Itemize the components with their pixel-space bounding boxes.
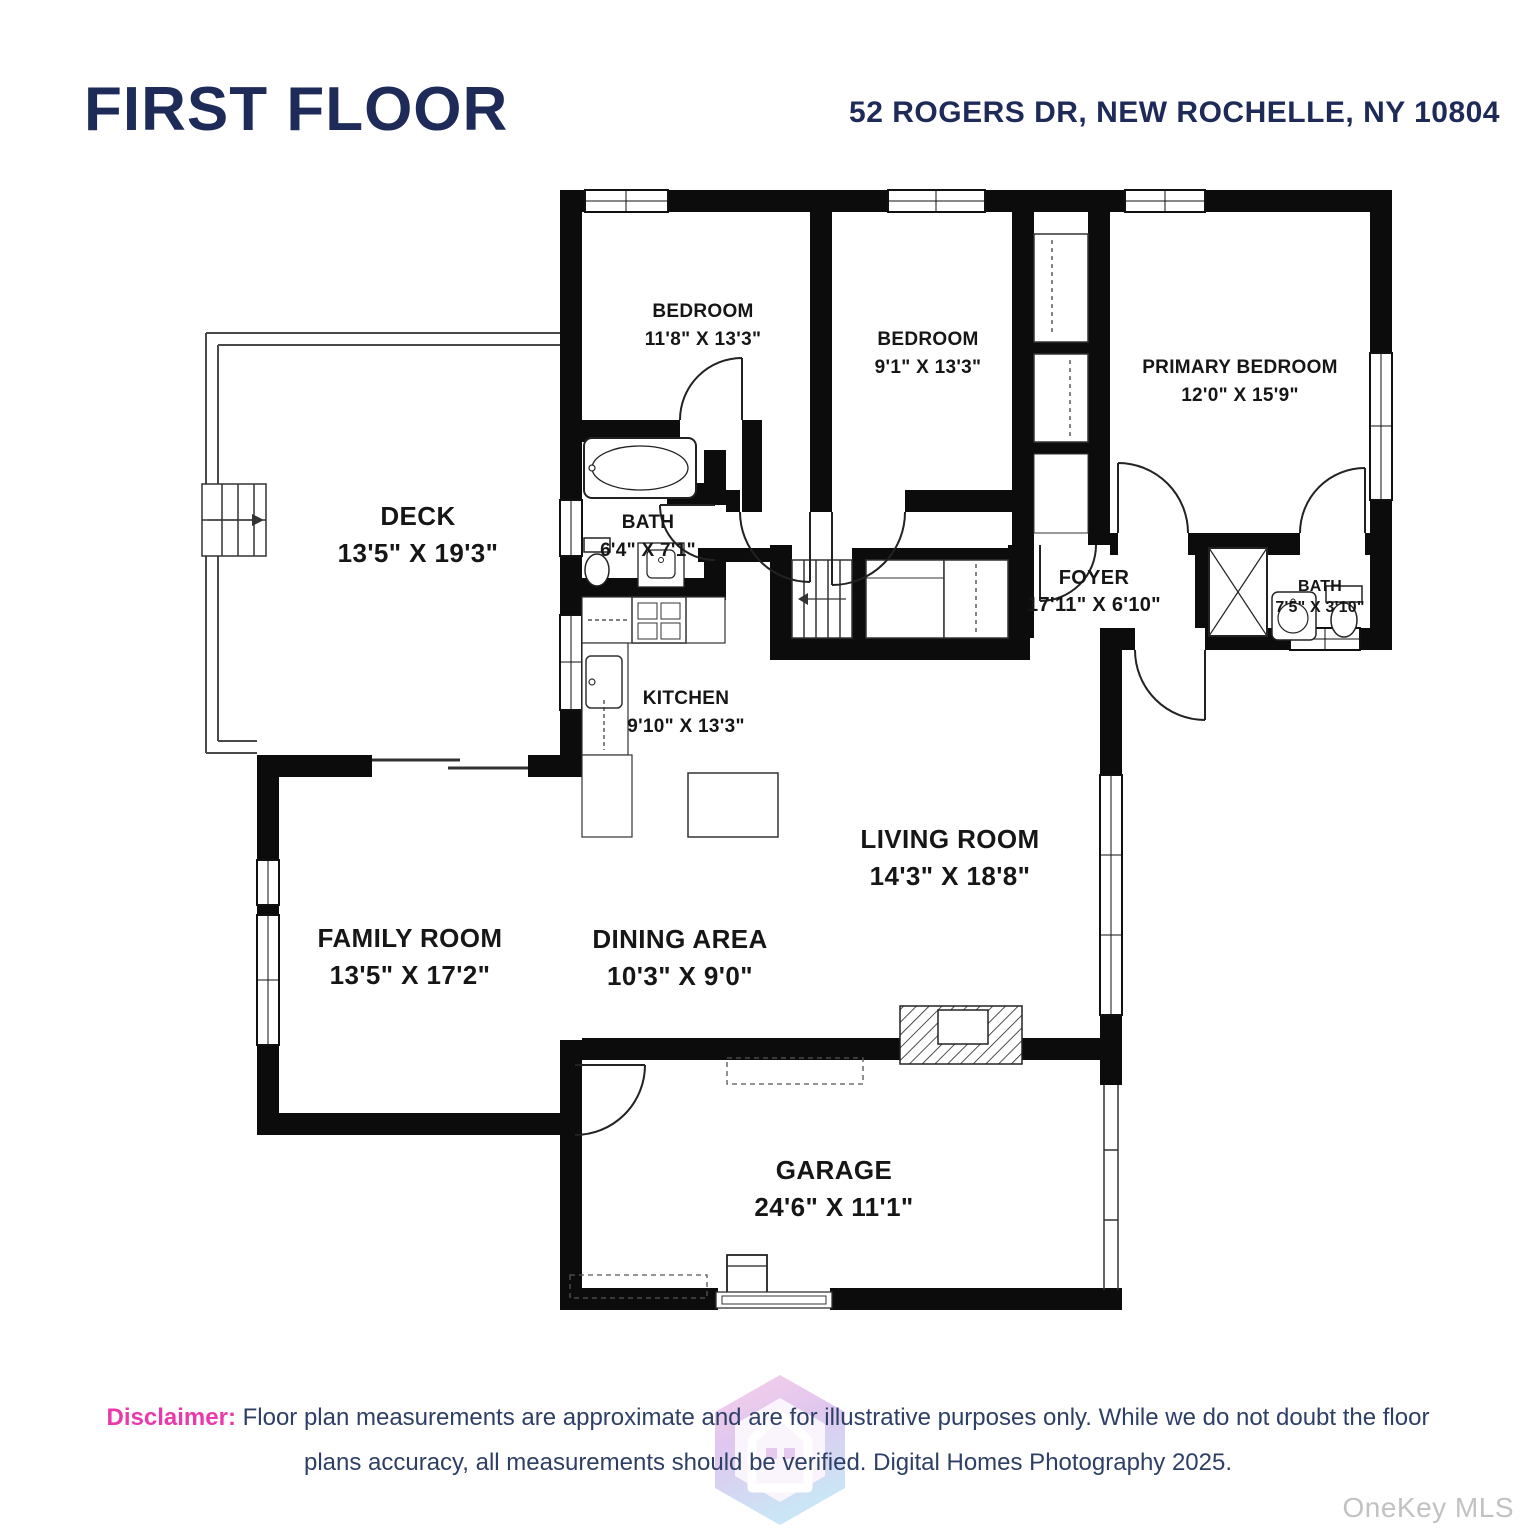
room-label-garage: GARAGE 24'6" X 11'1" bbox=[754, 1152, 913, 1226]
hall-closets bbox=[866, 560, 1008, 638]
room-name: BEDROOM bbox=[645, 298, 762, 326]
disclaimer: Disclaimer: Floor plan measurements are … bbox=[98, 1395, 1438, 1485]
room-name: PRIMARY BEDROOM bbox=[1142, 354, 1338, 382]
room-dims: 10'3" X 9'0" bbox=[592, 958, 767, 995]
room-label-bath-2: BATH 7'5" X 3'10" bbox=[1275, 576, 1364, 618]
room-name: KITCHEN bbox=[627, 685, 745, 713]
room-name: DECK bbox=[338, 498, 499, 535]
page-title: FIRST FLOOR bbox=[84, 74, 508, 145]
room-label-family-room: FAMILY ROOM 13'5" X 17'2" bbox=[318, 920, 503, 994]
disclaimer-label: Disclaimer: bbox=[107, 1404, 236, 1431]
sliding-door bbox=[372, 760, 528, 768]
interior-stairs bbox=[792, 560, 852, 638]
floor-plan-drawing bbox=[0, 0, 1536, 1536]
room-dims: 13'5" X 19'3" bbox=[338, 535, 499, 572]
room-name: DINING AREA bbox=[592, 921, 767, 958]
room-dims: 6'4" X 7'1" bbox=[600, 537, 696, 565]
fireplace bbox=[900, 1006, 1022, 1064]
room-label-deck: DECK 13'5" X 19'3" bbox=[338, 498, 499, 572]
room-label-kitchen: KITCHEN 9'10" X 13'3" bbox=[627, 685, 745, 741]
room-dims: 9'10" X 13'3" bbox=[627, 713, 745, 741]
room-name: FAMILY ROOM bbox=[318, 920, 503, 957]
room-label-primary-bedroom: PRIMARY BEDROOM 12'0" X 15'9" bbox=[1142, 354, 1338, 410]
room-dims: 7'5" X 3'10" bbox=[1275, 597, 1364, 618]
garage-screen bbox=[1104, 1085, 1118, 1290]
disclaimer-text: Floor plan measurements are approximate … bbox=[236, 1404, 1430, 1476]
room-label-living-room: LIVING ROOM 14'3" X 18'8" bbox=[860, 821, 1039, 895]
room-name: BEDROOM bbox=[875, 326, 982, 354]
room-name: GARAGE bbox=[754, 1152, 913, 1189]
room-name: BATH bbox=[1275, 576, 1364, 597]
room-label-bath-1: BATH 6'4" X 7'1" bbox=[600, 509, 696, 565]
room-name: LIVING ROOM bbox=[860, 821, 1039, 858]
room-name: FOYER bbox=[1027, 565, 1161, 592]
mls-watermark: OneKey MLS bbox=[1342, 1492, 1514, 1524]
room-dims: 24'6" X 11'1" bbox=[754, 1189, 913, 1226]
room-dims: 12'0" X 15'9" bbox=[1142, 382, 1338, 410]
deck-stairs bbox=[202, 484, 266, 556]
room-label-foyer: FOYER 17'11" X 6'10" bbox=[1027, 565, 1161, 619]
room-dims: 9'1" X 13'3" bbox=[875, 354, 982, 382]
room-dims: 14'3" X 18'8" bbox=[860, 858, 1039, 895]
bedroom-closets bbox=[1034, 234, 1088, 533]
room-name: BATH bbox=[600, 509, 696, 537]
room-dims: 11'8" X 13'3" bbox=[645, 326, 762, 354]
room-label-dining-area: DINING AREA 10'3" X 9'0" bbox=[592, 921, 767, 995]
floor-plan-page: FIRST FLOOR 52 ROGERS DR, NEW ROCHELLE, … bbox=[0, 0, 1536, 1536]
room-dims: 13'5" X 17'2" bbox=[318, 957, 503, 994]
room-label-bedroom-2: BEDROOM 9'1" X 13'3" bbox=[875, 326, 982, 382]
room-label-bedroom-1: BEDROOM 11'8" X 13'3" bbox=[645, 298, 762, 354]
room-dims: 17'11" X 6'10" bbox=[1027, 592, 1161, 619]
property-address: 52 ROGERS DR, NEW ROCHELLE, NY 10804 bbox=[849, 96, 1500, 130]
